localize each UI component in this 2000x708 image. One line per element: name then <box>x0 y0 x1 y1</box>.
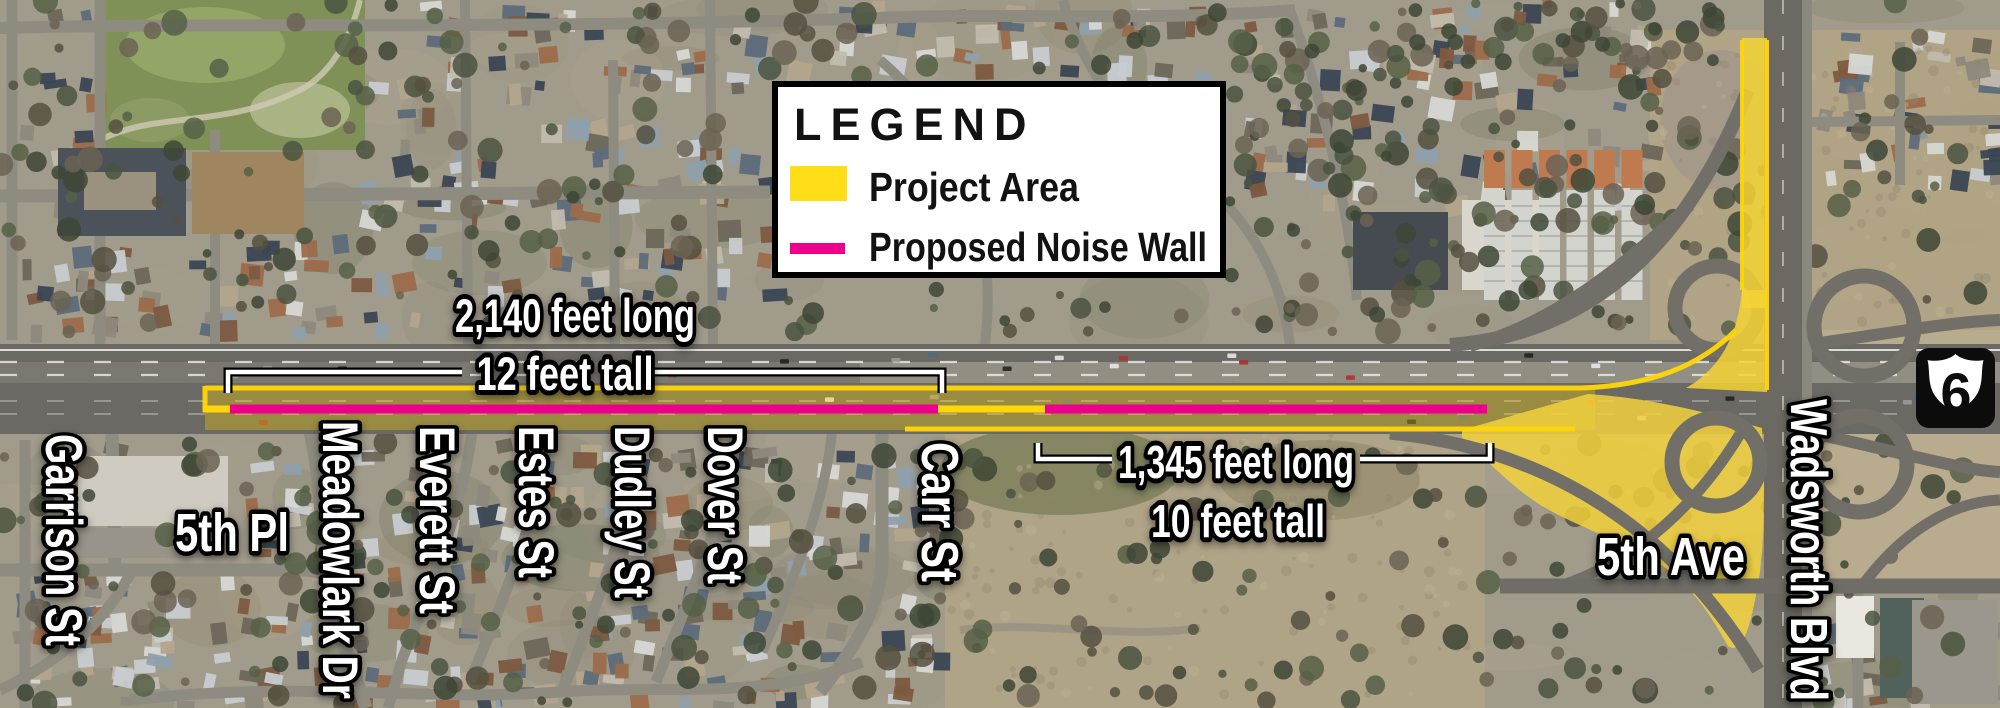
wall-west-height-label: 12 feet tall <box>477 347 654 400</box>
street-label-dudley: Dudley St <box>604 426 660 598</box>
street-label-meadowlark: Meadowlark Dr <box>312 421 368 699</box>
street-label-5th-ave: 5th Ave <box>1597 527 1745 587</box>
legend-title: LEGEND <box>794 99 1036 150</box>
legend-project-area-swatch <box>790 166 847 201</box>
legend: LEGEND Project Area Proposed Noise Wall <box>775 84 1223 275</box>
street-label-dover: Dover St <box>697 426 753 584</box>
legend-noise-wall-swatch <box>790 243 845 254</box>
route-number: 6 <box>1940 361 1971 424</box>
street-label-wadsworth: Wadsworth Blvd <box>1779 399 1837 701</box>
us-route-6-shield: 6 <box>1916 348 1995 428</box>
street-label-estes: Estes St <box>508 426 564 578</box>
legend-project-area-label: Project Area <box>869 164 1080 210</box>
street-label-garrison: Garrison St <box>34 434 92 646</box>
street-label-everett: Everett St <box>409 426 465 614</box>
street-label-carr: Carr St <box>910 442 968 582</box>
aerial-map: 2,140 feet long 12 feet tall 1,345 feet … <box>0 0 2000 708</box>
legend-noise-wall-label: Proposed Noise Wall <box>869 224 1207 270</box>
street-label-5th-pl: 5th Pl <box>175 503 289 563</box>
wall-east-length-label: 1,345 feet long <box>1118 436 1354 488</box>
wall-east-height-label: 10 feet tall <box>1151 495 1325 547</box>
wall-west-length-label: 2,140 feet long <box>455 289 695 342</box>
